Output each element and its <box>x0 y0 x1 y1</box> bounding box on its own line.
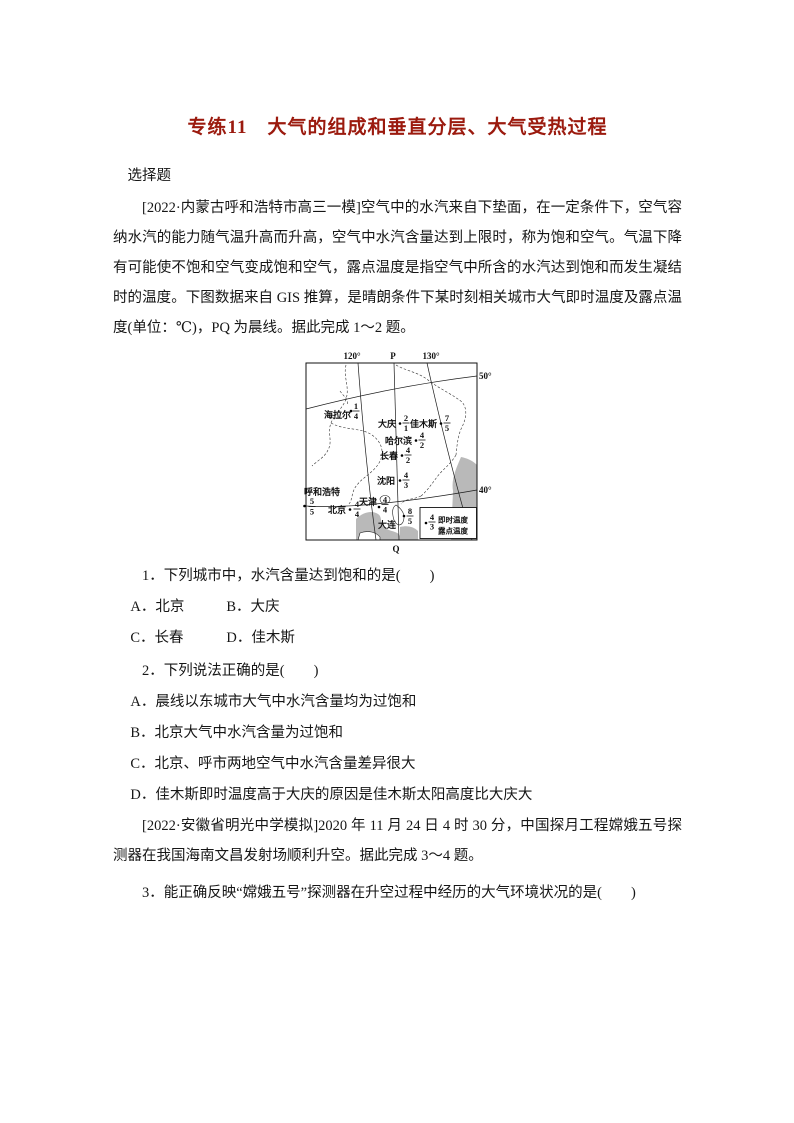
meridian-label-120: 120° <box>343 351 361 361</box>
city-tianjin: 天津 4 4 <box>359 495 390 515</box>
city-temp: 4 <box>403 470 408 480</box>
point-p-label: P <box>390 351 396 361</box>
city-name: 北京 <box>328 504 346 515</box>
legend-temp-label: 即时温度 <box>438 515 468 525</box>
city-dew: 4 <box>353 411 358 421</box>
city-dew: 2 <box>405 455 409 465</box>
q2-option-b: B．北京大气中水汽含量为过饱和 <box>113 718 682 749</box>
intro-paragraph-2: [2022·安徽省明光中学模拟]2020 年 11 月 24 日 4 时 30 … <box>113 811 682 871</box>
city-name: 大庆 <box>378 418 396 429</box>
city-dew: 5 <box>444 423 448 433</box>
city-dot <box>377 506 380 509</box>
legend-dew-value: 3 <box>429 522 433 532</box>
q1-option-a: A．北京 <box>130 592 226 623</box>
city-dot <box>398 422 401 425</box>
q1-option-c: C．长春 <box>130 623 226 654</box>
city-temp: 5 <box>309 496 313 506</box>
city-dew: 3 <box>403 480 407 490</box>
section-label: 选择题 <box>113 163 682 189</box>
city-name: 天津 <box>359 496 377 507</box>
northeast-china-map: 120° P 130° 50° 40° Q 海拉尔 1 4 大庆 2 <box>300 347 496 559</box>
city-temp: 2 <box>403 413 407 423</box>
parallel-50 <box>306 376 477 409</box>
parallel-label-40: 40° <box>479 485 492 495</box>
city-dew: 4 <box>382 505 387 515</box>
city-temp: 4 <box>419 430 424 440</box>
city-dew: 5 <box>407 516 411 526</box>
city-shenyang: 沈阳 4 3 <box>377 470 410 490</box>
exam-page: 专练11 大气的组成和垂直分层、大气受热过程 选择题 [2022·内蒙古呼和浩特… <box>0 0 794 1123</box>
q1-option-b: B．大庆 <box>226 599 279 615</box>
city-changchun: 长春 4 2 <box>380 445 412 465</box>
question-1-options-row-2: C．长春D．佳木斯 <box>113 623 682 654</box>
parallel-label-50: 50° <box>479 371 492 381</box>
sea-area-south <box>400 526 418 540</box>
city-name: 大连 <box>378 519 397 530</box>
document-body: 专练11 大气的组成和垂直分层、大气受热过程 选择题 [2022·内蒙古呼和浩特… <box>0 0 794 909</box>
city-dot <box>414 439 417 442</box>
point-q-label: Q <box>392 544 399 554</box>
map-figure: 120° P 130° 50° 40° Q 海拉尔 1 4 大庆 2 <box>300 347 496 559</box>
city-dew: 5 <box>309 507 313 517</box>
city-temp: 1 <box>353 401 357 411</box>
city-dew: 1 <box>403 423 407 433</box>
city-beijing: 北京 4 4 <box>328 499 361 519</box>
q2-option-a: A．晨线以东城市大气中水汽含量均为过饱和 <box>113 687 682 718</box>
question-1-stem: 1．下列城市中，水汽含量达到饱和的是( ) <box>113 561 682 592</box>
city-name: 海拉尔 <box>324 409 351 420</box>
city-dot <box>349 410 352 413</box>
city-hailaer: 海拉尔 1 4 <box>324 401 360 421</box>
city-dot <box>303 505 306 508</box>
legend-dot <box>424 522 427 525</box>
q2-option-c: C．北京、呼市两地空气中水汽含量差异很大 <box>113 749 682 780</box>
q1-option-d: D．佳木斯 <box>226 630 294 646</box>
city-dew: 2 <box>419 440 423 450</box>
city-dot <box>398 479 401 482</box>
meridian-label-130: 130° <box>422 351 440 361</box>
question-2-stem: 2．下列说法正确的是( ) <box>113 656 682 687</box>
city-dot <box>400 454 403 457</box>
city-name: 沈阳 <box>377 475 395 486</box>
question-3-stem: 3．能正确反映“嫦娥五号”探测器在升空过程中经历的大气环境状况的是( ) <box>113 878 682 909</box>
map-legend: 4 3 即时温度 露点温度 <box>420 508 477 539</box>
city-dot <box>348 508 351 511</box>
city-dot <box>439 422 442 425</box>
city-temp: 4 <box>405 445 410 455</box>
question-1-options-row-1: A．北京B．大庆 <box>113 592 682 623</box>
city-dot <box>402 515 405 518</box>
city-jiamusi: 佳木斯 7 5 <box>410 413 451 433</box>
city-temp: 8 <box>407 506 411 516</box>
legend-dew-label: 露点温度 <box>438 526 468 536</box>
city-name: 长春 <box>380 450 399 461</box>
city-name: 佳木斯 <box>410 418 437 429</box>
intro-paragraph-1: [2022·内蒙古呼和浩特市高三一模]空气中的水汽来自下垫面，在一定条件下，空气… <box>113 193 682 343</box>
page-title: 专练11 大气的组成和垂直分层、大气受热过程 <box>113 112 682 139</box>
city-daqing: 大庆 2 1 <box>378 413 410 433</box>
city-temp: 7 <box>444 413 449 423</box>
boundary-dashed-5 <box>340 391 347 405</box>
q2-option-d: D．佳木斯即时温度高于大庆的原因是佳木斯太阳高度比大庆大 <box>113 780 682 811</box>
